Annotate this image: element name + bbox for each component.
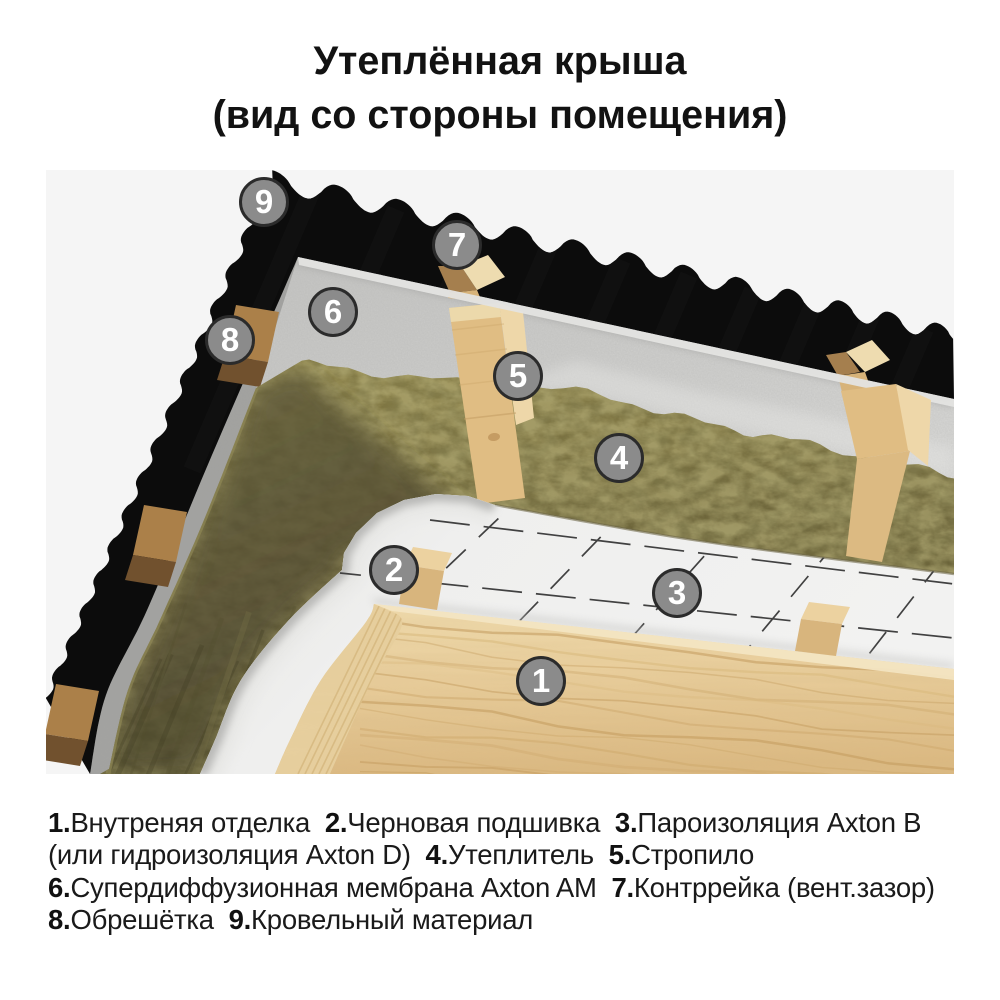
svg-text:5: 5 [509,357,527,394]
svg-text:6: 6 [324,293,342,330]
svg-text:9: 9 [255,183,273,220]
svg-text:1: 1 [532,662,550,699]
svg-text:8: 8 [221,321,239,358]
svg-text:4: 4 [610,439,629,476]
svg-text:3: 3 [668,574,686,611]
svg-text:2: 2 [385,551,403,588]
svg-text:7: 7 [448,226,466,263]
